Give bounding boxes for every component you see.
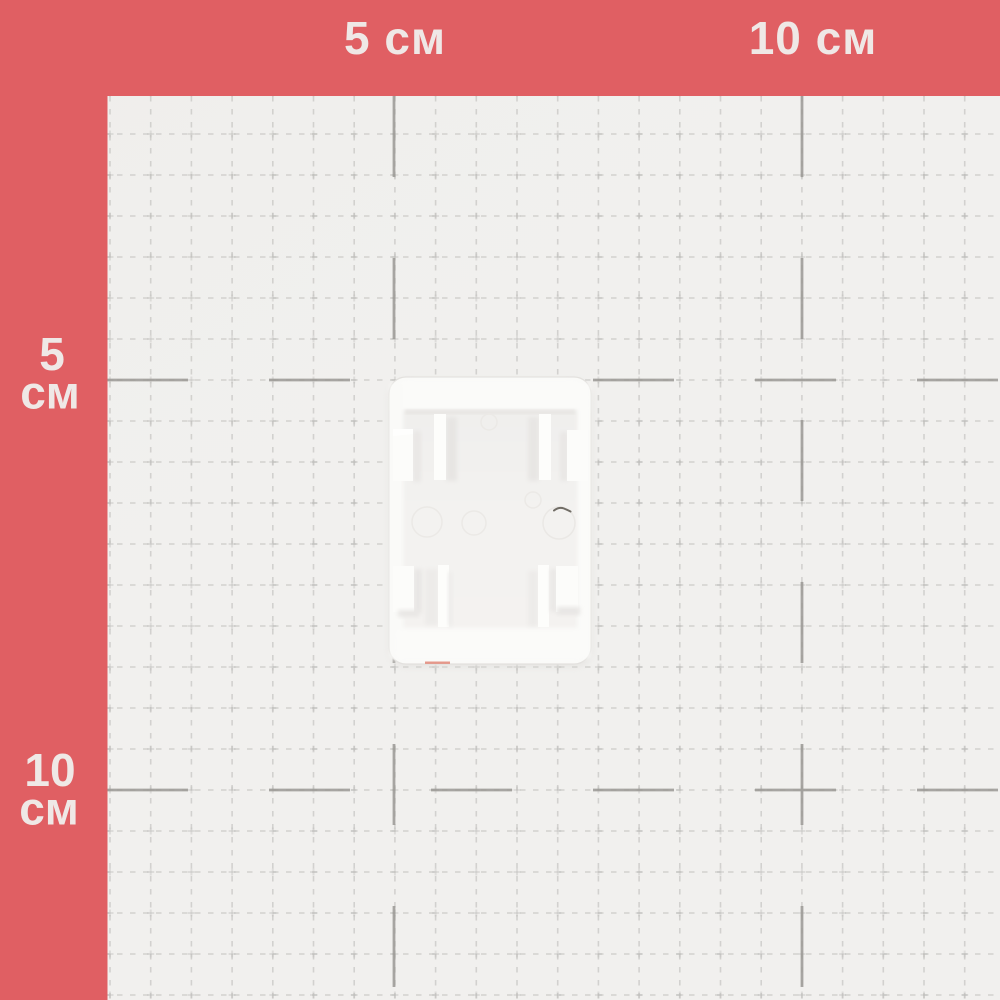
- svg-text:5 см: 5 см: [344, 12, 446, 64]
- svg-text:см: см: [19, 783, 79, 835]
- svg-text:10 см: 10 см: [749, 12, 878, 64]
- svg-text:см: см: [20, 367, 80, 419]
